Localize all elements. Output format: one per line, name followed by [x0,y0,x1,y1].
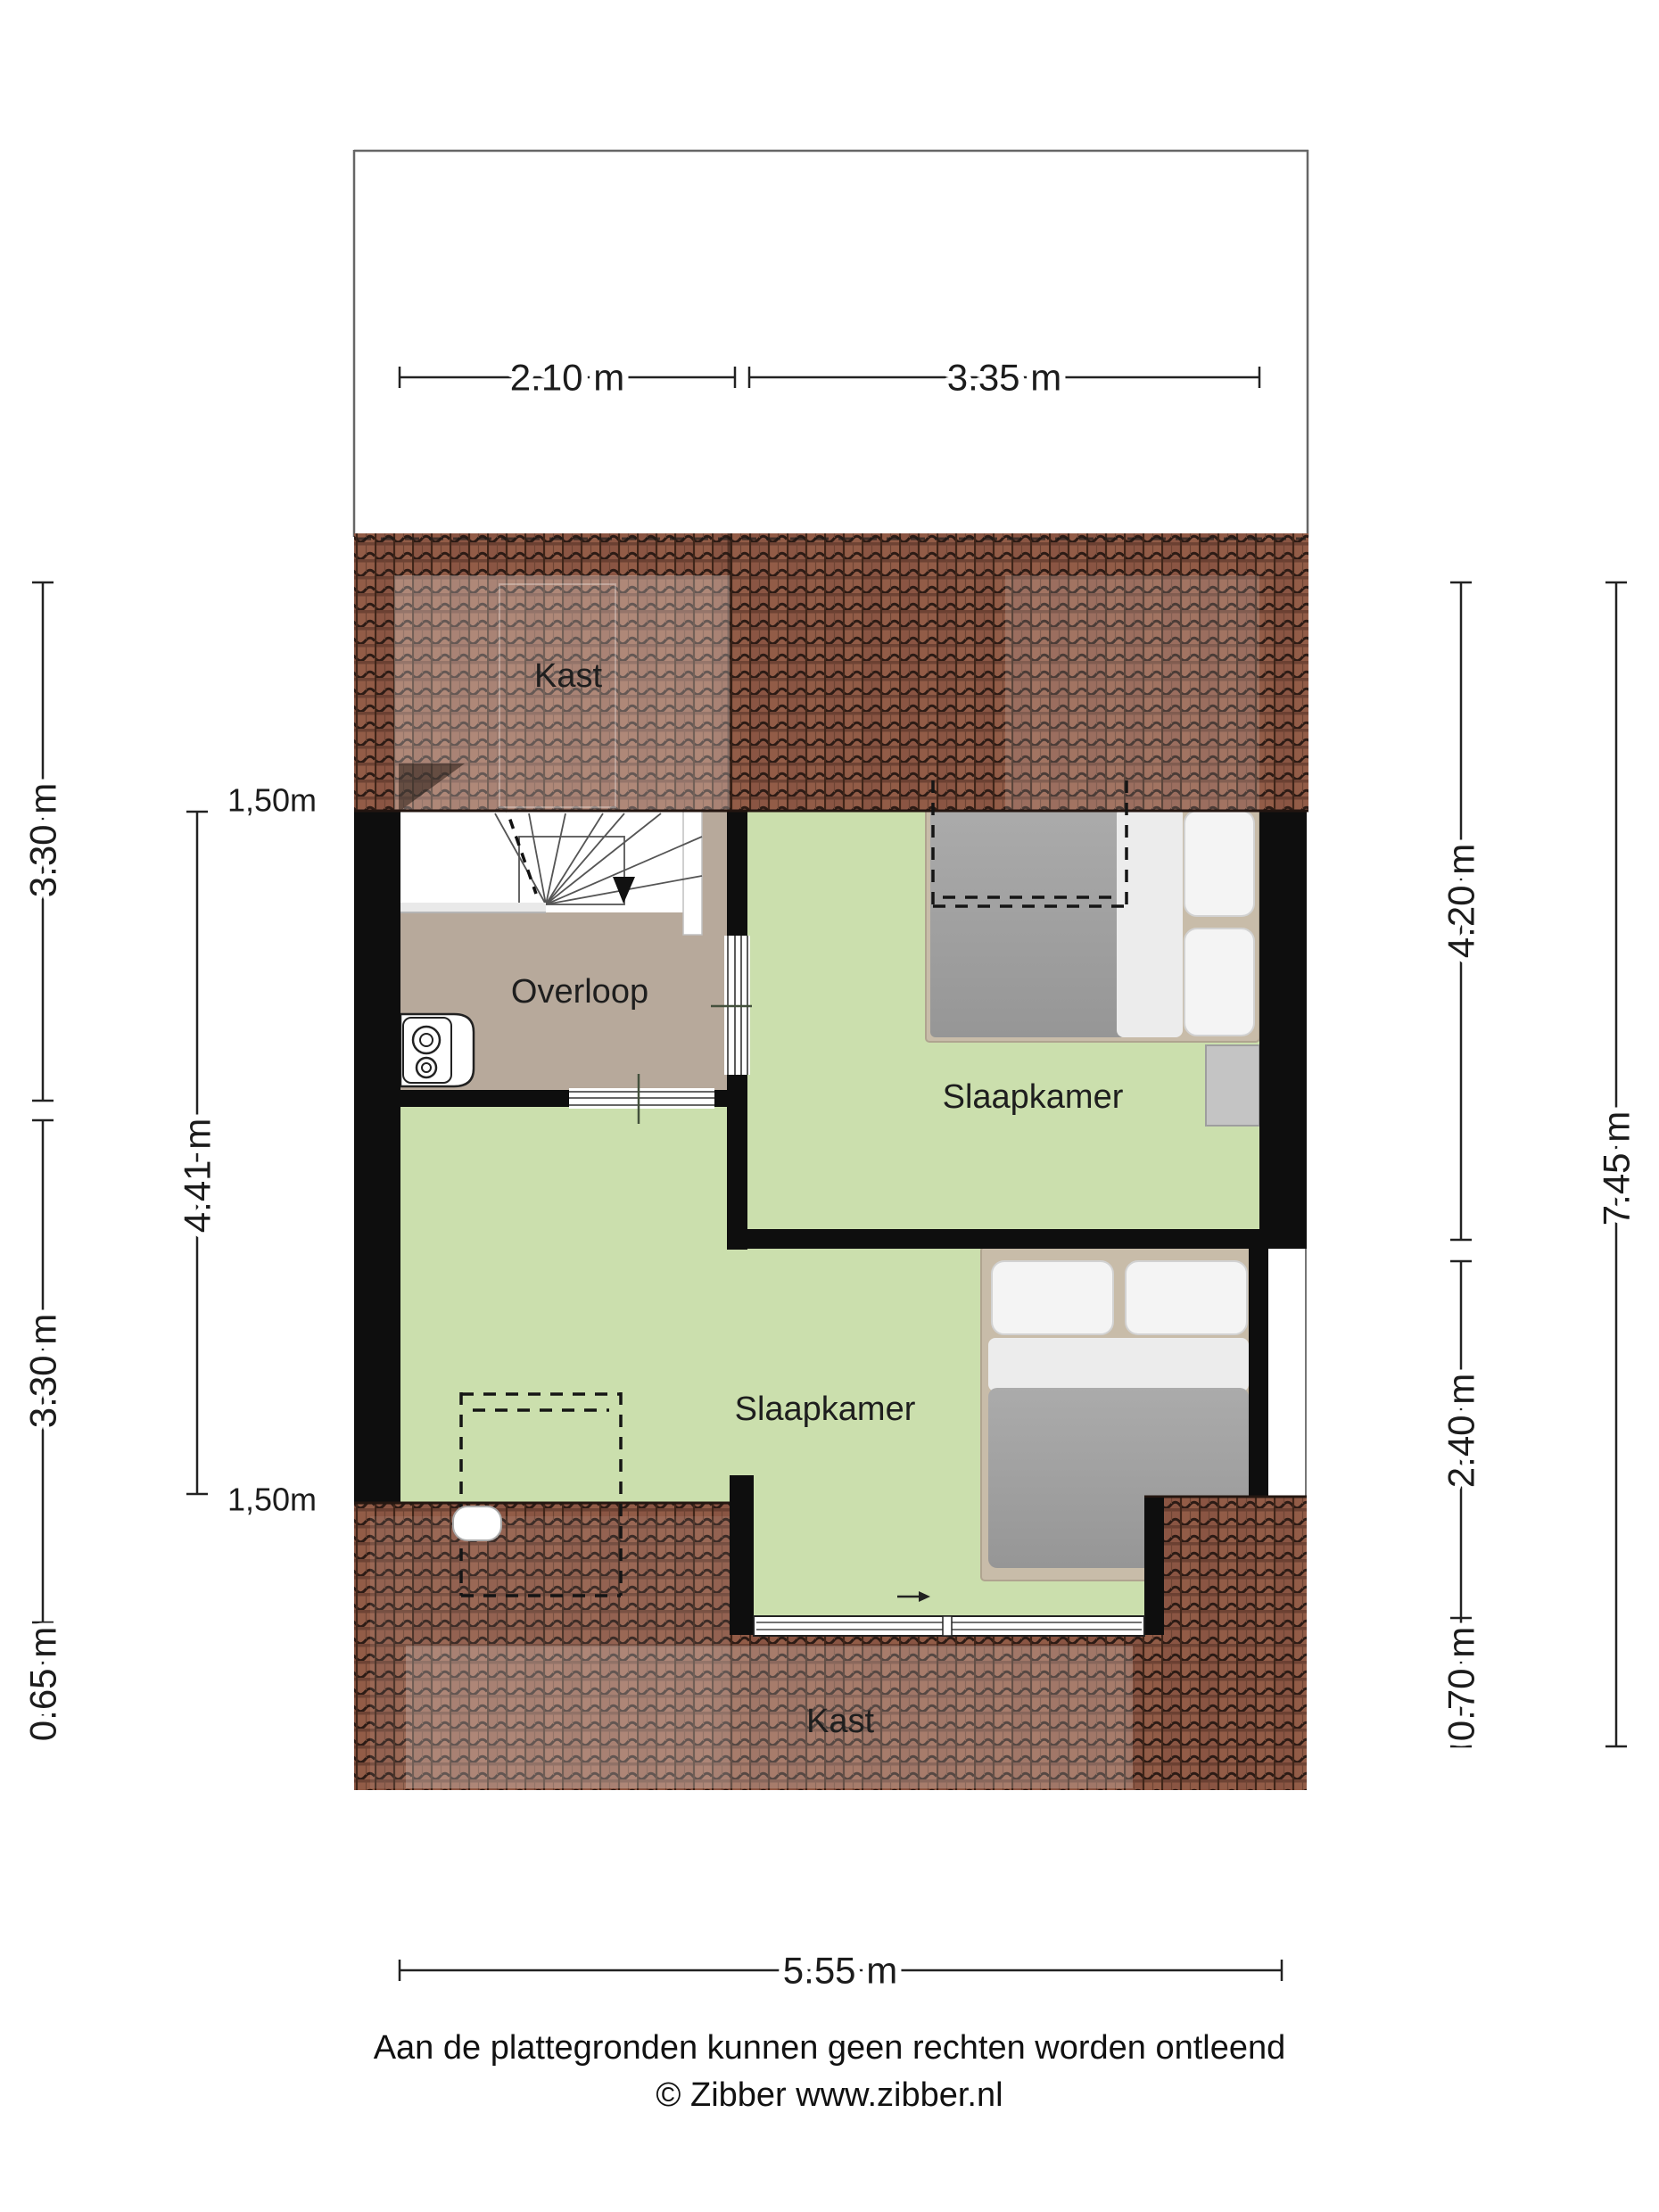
footer-disclaimer: Aan de plattegronden kunnen geen rechten… [374,2029,1286,2067]
dormer-wall-right [1144,1498,1164,1635]
dim-top-right-label: 3.35 m [947,357,1061,399]
room-label-slaapkamer-bottom: Slaapkamer [735,1391,916,1428]
pillow [1184,929,1254,1036]
room-label-kast-top: Kast [534,657,602,695]
pillow [992,1261,1113,1334]
roof-top [354,533,1308,812]
kast-bottom-roof-overlay [406,1646,1133,1788]
footer-copyright: © Zibber www.zibber.nl [656,2076,1003,2114]
bed-right-bedroom [926,803,1259,1042]
dim-right-bottom-label: 0.70 m [1440,1627,1482,1741]
room-slaapkamer-bottom-floor-left [400,1107,747,1505]
dim-right-lower-label: 2.40 m [1440,1374,1482,1488]
wall-left-exterior [354,808,400,1505]
floorplan-canvas: 2.10 m 3.35 m [0,0,1659,2212]
dim-left-bottom-label: 0.65 m [22,1627,64,1741]
wall-right-lower [1249,1244,1268,1500]
pillow [1126,1261,1247,1334]
knee-height-label-lower: 1,50m [227,1482,317,1518]
dimension-top: 2.10 m 3.35 m [400,357,1259,399]
dim-left-upper-label: 3.30 m [22,783,64,897]
dim-bottom-label: 5.55 m [783,1950,897,1992]
room-label-overloop: Overloop [511,973,648,1011]
wall-corner-block [714,1090,747,1107]
wall-right-exterior [1259,808,1307,1245]
room-label-slaapkamer-right: Slaapkamer [943,1078,1124,1116]
dormer-wall-left [730,1475,754,1635]
dormer-window [754,1616,1144,1636]
dim-left-lower-label: 3.30 m [22,1314,64,1428]
toilet-under-roof [453,1506,501,1540]
dim-right-upper-label: 4.20 m [1440,844,1482,958]
dim-top-left-label: 2.10 m [510,357,624,399]
dimension-left: 3.30 m 3.30 m 0.65 m 4.41 m 1,50m 1,50m [22,582,318,1741]
nightstand [1206,1045,1259,1126]
wall-overloop-bedroom-upper [727,808,747,936]
dim-left-inner-label: 4.41 m [177,1118,219,1233]
dim-right-total-label: 7.45 m [1596,1111,1638,1226]
wall-between-bedrooms [747,1229,1307,1249]
bedroom-roof-overlay [1005,575,1259,812]
window-divider [943,1616,952,1636]
boiler [400,1014,474,1086]
dimension-bottom: 5.55 m [400,1950,1282,1992]
room-label-kast-bottom: Kast [806,1703,874,1740]
pillow [1184,811,1254,916]
dimension-right: 4.20 m 2.40 m 0.70 m 7.45 m [1440,582,1638,1746]
knee-height-label-upper: 1,50m [227,782,317,819]
wall-overloop-south [400,1090,569,1107]
